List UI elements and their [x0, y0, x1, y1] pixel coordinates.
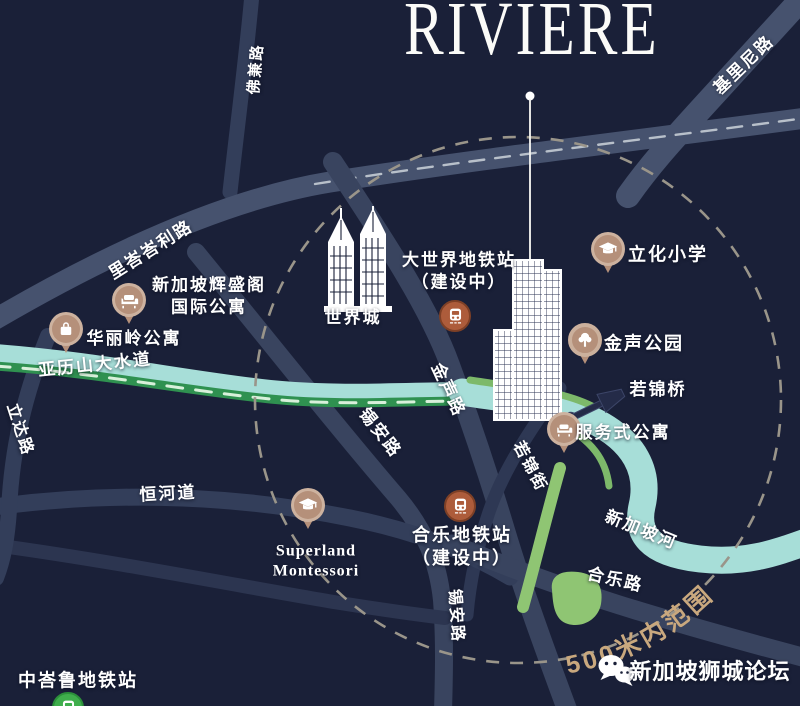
station-status: （建设中）	[412, 547, 512, 570]
station-label-great-world: 大世界地铁站 （建设中）	[402, 249, 516, 293]
map-canvas: 500米内范围	[0, 0, 800, 706]
poi-label-line1: Superland	[273, 542, 359, 562]
station-label-havelock: 合乐地铁站 （建设中）	[412, 524, 512, 570]
station-status: （建设中）	[402, 271, 516, 293]
watermark-brand: 新加坡狮城论坛	[629, 658, 790, 686]
poi-label-fraser-suites: 新加坡辉盛阁 国际公寓	[152, 274, 266, 318]
poi-label-jiak-kim-bridge: 若锦桥	[630, 379, 687, 401]
poi-label-line2: Montessori	[273, 562, 359, 582]
poi-label-great-world-city: 世界城	[325, 307, 382, 329]
station-name: 大世界地铁站	[402, 249, 516, 271]
station-name: 合乐地铁站	[412, 524, 512, 547]
graduation-cap-icon	[598, 239, 618, 259]
poi-label-kim-seng-park: 金声公园	[604, 332, 684, 355]
poi-label-superland: Superland Montessori	[273, 542, 359, 583]
pin-head	[112, 283, 146, 317]
poi-label-river-valley-primary: 立化小学	[628, 243, 708, 266]
poi-label-line1: 新加坡辉盛阁	[152, 274, 266, 296]
pin-head	[568, 323, 602, 357]
project-title: RIVIÈRE	[404, 0, 660, 73]
shopping-bag-icon	[57, 320, 75, 338]
pin-head	[291, 488, 325, 522]
pin-head	[49, 312, 83, 346]
pin-head	[591, 232, 625, 266]
poi-label-line2: 国际公寓	[152, 296, 266, 318]
poi-label-serviced-apartments: 服务式公寓	[576, 422, 671, 444]
train-icon	[444, 490, 476, 522]
graduation-cap-icon	[298, 495, 318, 515]
sofa-icon	[119, 290, 139, 310]
poi-label-valley-point: 华丽岭公寓	[87, 328, 182, 350]
road-label-ganges-avenue: 恒河道	[139, 482, 197, 507]
sofa-icon	[555, 420, 573, 438]
tree-icon	[576, 331, 594, 349]
train-icon	[446, 307, 465, 326]
road-label-zion-south: 锡安路	[443, 588, 467, 643]
train-icon	[59, 699, 78, 706]
twin-towers-icon	[318, 206, 398, 318]
train-icon	[439, 300, 471, 332]
station-label-tiong-bahru: 中峇鲁地铁站	[18, 669, 138, 692]
train-icon	[451, 497, 470, 516]
